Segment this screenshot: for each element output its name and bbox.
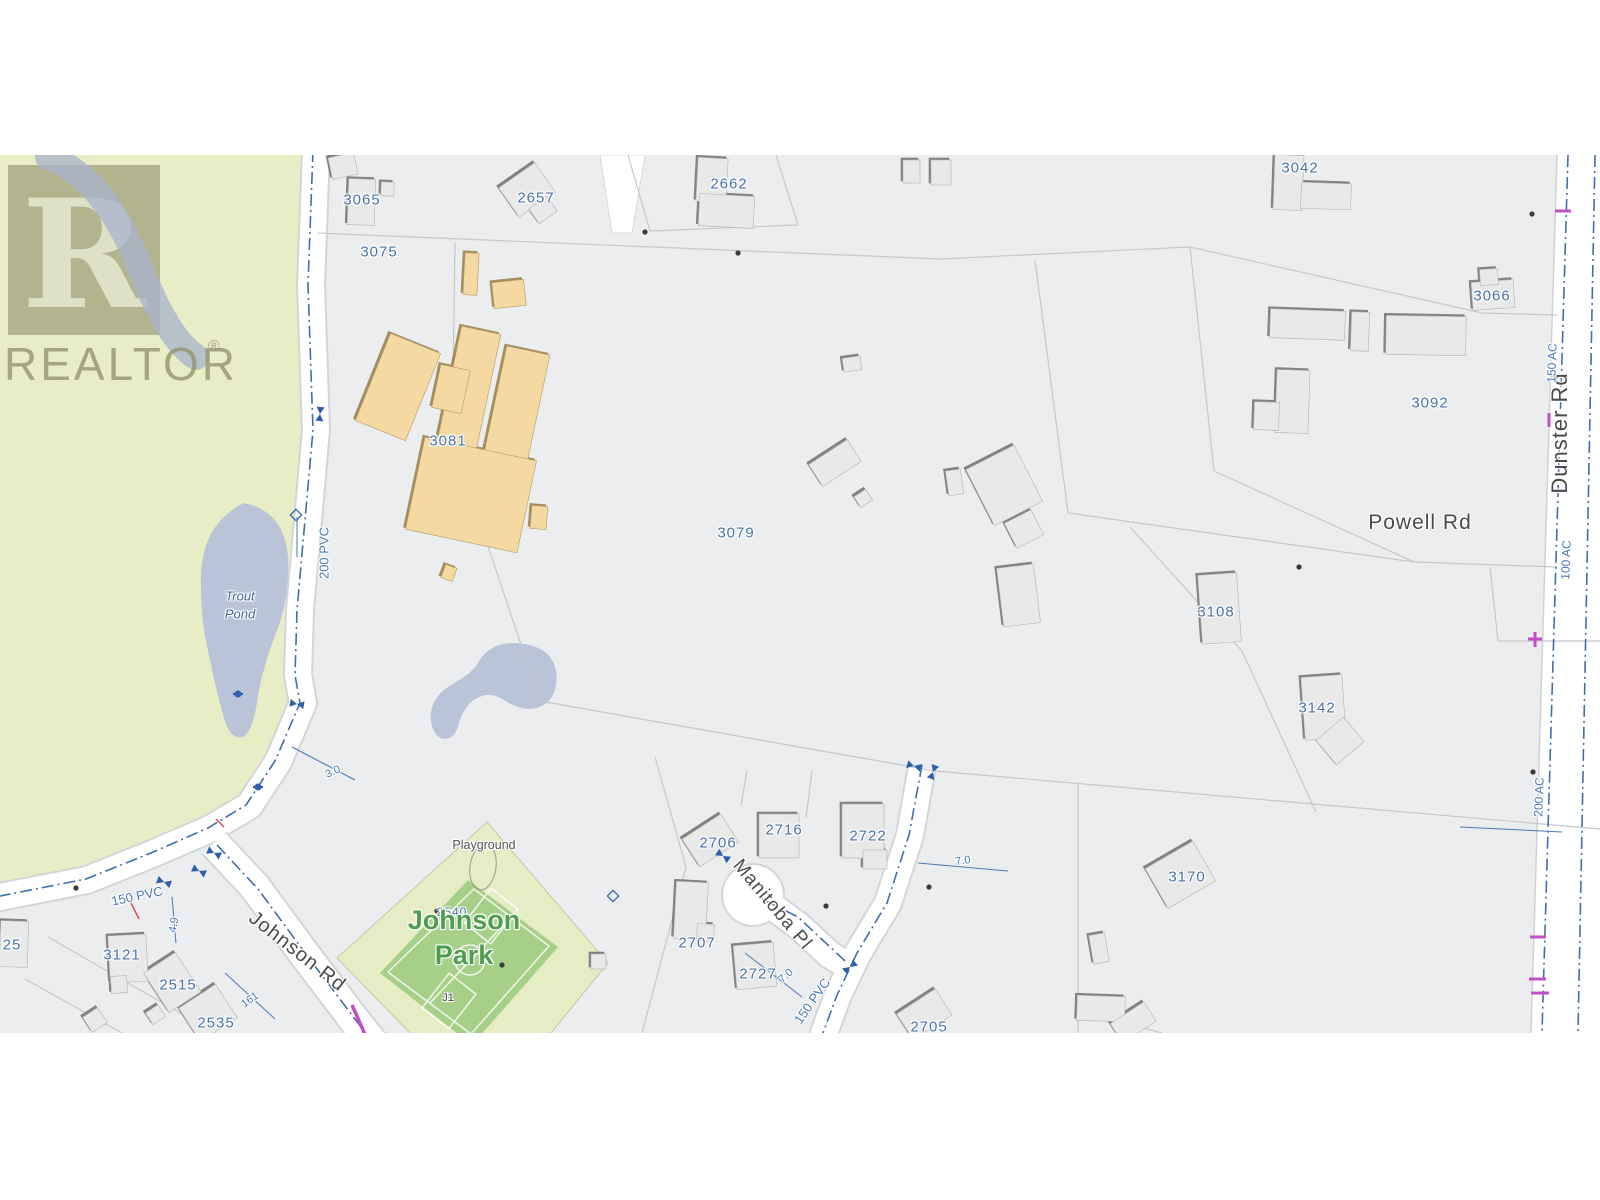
map-geometry: R REALTOR ® [0, 155, 1600, 1033]
realtor-registered-mark: ® [208, 338, 220, 355]
realtor-wordmark: REALTOR [4, 338, 238, 390]
map-canvas: R REALTOR ® 3065 3075 2657 2662 3042 306… [0, 155, 1600, 1033]
listing-map-image: R REALTOR ® 3065 3075 2657 2662 3042 306… [0, 0, 1600, 1200]
